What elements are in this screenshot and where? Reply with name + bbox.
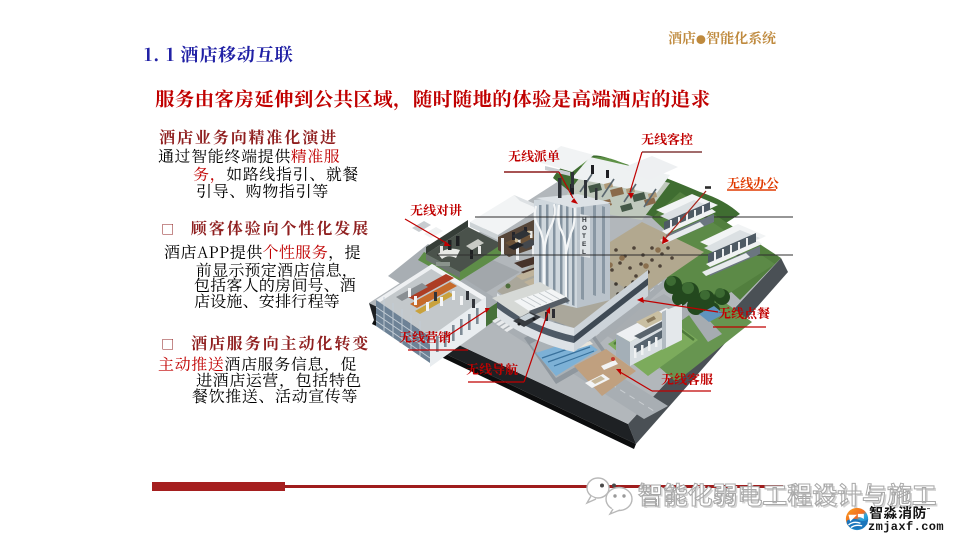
svg-text:无线点餐: 无线点餐 <box>718 303 770 322</box>
svg-text:无线办公: 无线办公 <box>727 173 779 192</box>
svg-text:无线派单: 无线派单 <box>508 146 560 165</box>
svg-text:无线客控: 无线客控 <box>641 129 693 148</box>
svg-text:无线营销: 无线营销 <box>399 327 451 346</box>
svg-text:无线客服: 无线客服 <box>661 369 713 388</box>
svg-text:无线对讲: 无线对讲 <box>410 200 462 219</box>
svg-text:无线导航: 无线导航 <box>466 359 518 378</box>
